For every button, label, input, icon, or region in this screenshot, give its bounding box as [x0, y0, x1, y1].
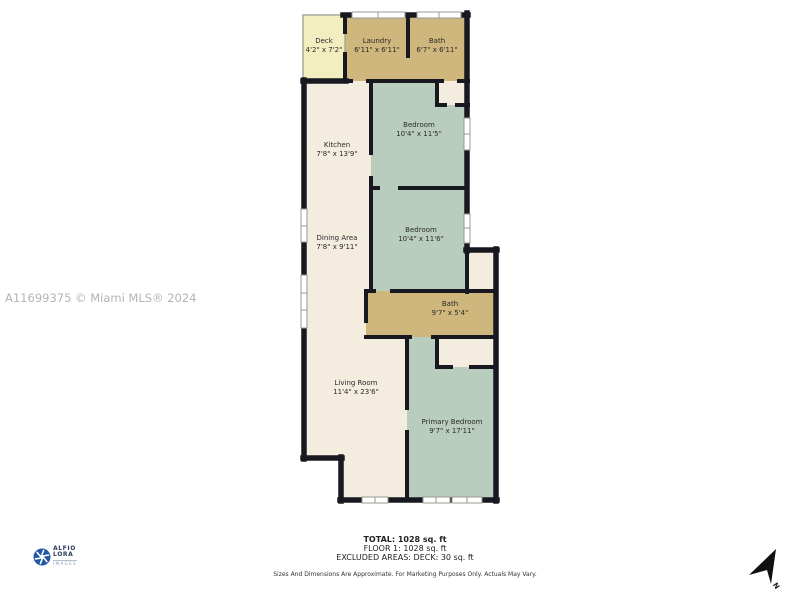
mls-watermark: A11699375 © Miami MLS® 2024 [5, 291, 196, 305]
room-dims: 10'4" x 11'5" [396, 130, 442, 139]
summary-total: TOTAL: 1028 sq. ft [273, 535, 537, 544]
room-dims: 10'4" x 11'6" [398, 235, 444, 244]
room-name: Bath [416, 37, 457, 46]
room-dims: 7'8" x 13'9" [316, 150, 357, 159]
room-name: Deck [306, 37, 343, 46]
north-arrow-icon [749, 549, 776, 584]
room-label-kitchen: Kitchen 7'8" x 13'9" [316, 141, 357, 159]
logo-line-2: LORA [53, 552, 77, 558]
summary-excluded: EXCLUDED AREAS: DECK: 30 sq. ft [273, 553, 537, 562]
room-name: Bath [432, 300, 469, 309]
room-label-bath-middle: Bath 9'7" x 5'4" [432, 300, 469, 318]
room-name: Laundry [354, 37, 400, 46]
room-dims: 9'7" x 5'4" [432, 309, 469, 318]
logo-icon-spacer [32, 547, 50, 565]
closet-fill-primary-bedroom [437, 337, 496, 367]
area-summary: TOTAL: 1028 sq. ft FLOOR 1: 1028 sq. ft … [273, 535, 537, 578]
floor-plan-page: Deck 4'2" x 7'2" Laundry 6'11" x 6'11" B… [0, 0, 800, 600]
room-dims: 4'2" x 7'2" [306, 46, 343, 55]
room-name: Dining Area [316, 234, 357, 243]
room-label-bedroom-2: Bedroom 10'4" x 11'6" [398, 226, 444, 244]
room-name: Bedroom [396, 121, 442, 130]
summary-floor1: FLOOR 1: 1028 sq. ft [273, 544, 537, 553]
room-dims: 7'8" x 9'11" [316, 243, 357, 252]
room-name: Primary Bedroom [422, 418, 483, 427]
room-dims: 6'11" x 6'11" [354, 46, 400, 55]
room-dims: 6'7" x 6'11" [416, 46, 457, 55]
closet-fill-bedroom-1 [437, 81, 467, 105]
summary-disclaimer: Sizes And Dimensions Are Approximate. Fo… [273, 571, 537, 578]
logo-line-3: IMAGES [53, 560, 77, 566]
room-label-dining-area: Dining Area 7'8" x 9'11" [316, 234, 357, 252]
room-label-living-room: Living Room 11'4" x 23'6" [333, 379, 379, 397]
room-name: Kitchen [316, 141, 357, 150]
room-dims: 9'7" x 17'11" [422, 427, 483, 436]
room-name: Bedroom [398, 226, 444, 235]
room-label-deck: Deck 4'2" x 7'2" [306, 37, 343, 55]
room-label-primary-bedroom: Primary Bedroom 9'7" x 17'11" [422, 418, 483, 436]
room-label-bedroom-1: Bedroom 10'4" x 11'5" [396, 121, 442, 139]
logo-text: ALFIO LORA IMAGES [53, 546, 77, 566]
room-label-laundry: Laundry 6'11" x 6'11" [354, 37, 400, 55]
room-name: Living Room [333, 379, 379, 388]
alfio-lora-logo: ALFIO LORA IMAGES [32, 546, 77, 566]
room-label-bath-top: Bath 6'7" x 6'11" [416, 37, 457, 55]
room-dims: 11'4" x 23'6" [333, 388, 379, 397]
